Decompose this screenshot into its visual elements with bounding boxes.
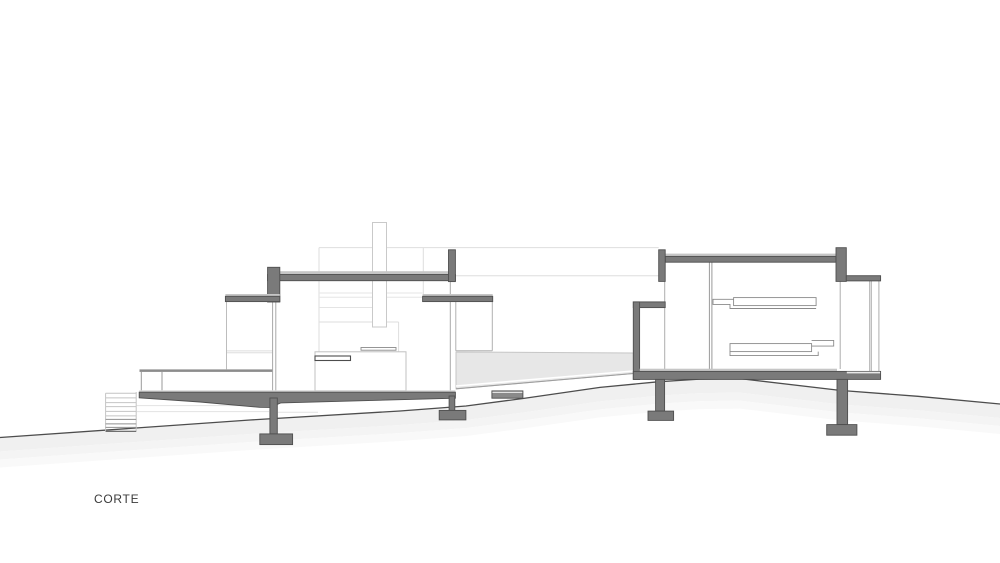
svg-text:CORTE: CORTE: [94, 492, 139, 506]
